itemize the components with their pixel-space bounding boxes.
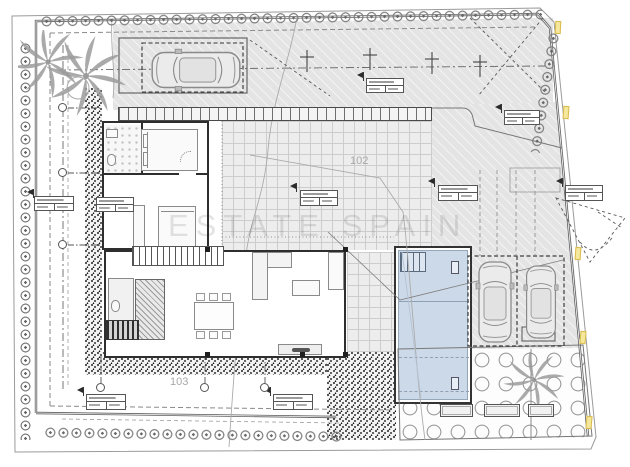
axis-bubble <box>260 383 269 392</box>
car-in-garage <box>150 48 242 92</box>
column <box>205 352 210 357</box>
boundary-highlight-marker <box>579 331 586 344</box>
chair <box>196 293 205 301</box>
armchair <box>328 252 344 290</box>
spot-level-table <box>34 196 74 211</box>
spot-level-table <box>438 185 478 201</box>
chair <box>222 293 231 301</box>
garden-planter <box>440 404 473 417</box>
garden-planter <box>528 404 554 417</box>
wc-toilet <box>111 300 120 312</box>
kitchen-island <box>135 279 165 340</box>
zone-label-103: 103 <box>170 376 188 388</box>
spot-level-table <box>273 394 313 410</box>
spot-level-table <box>565 185 603 201</box>
boundary-highlight-marker <box>555 21 562 34</box>
site-plan-canvas: 102 103 ESTATE SPAIN <box>0 0 630 467</box>
column <box>343 247 348 252</box>
roof-louvre-band <box>118 107 432 121</box>
bed <box>141 129 198 171</box>
pillow <box>143 152 148 166</box>
sofa <box>252 252 268 300</box>
column <box>300 352 305 357</box>
column <box>205 247 210 252</box>
spot-level-table <box>86 394 126 410</box>
wall <box>196 173 209 175</box>
dining-table <box>194 302 234 330</box>
pillow <box>143 134 148 148</box>
sink <box>106 129 118 138</box>
garden-planter <box>484 404 520 417</box>
spot-level-table <box>300 190 338 206</box>
parked-car-1 <box>475 260 515 344</box>
zone-label-102: 102 <box>350 155 368 167</box>
parked-car-2 <box>523 263 559 341</box>
axis-bubble <box>58 240 67 249</box>
boundary-highlight-marker <box>585 416 592 429</box>
palm-tree-southeast <box>500 352 570 412</box>
coffee-table <box>292 280 320 296</box>
boundary-highlight-marker <box>563 106 570 119</box>
axis-bubble <box>58 168 67 177</box>
watermark: ESTATE SPAIN <box>168 208 467 244</box>
staircase <box>132 246 224 266</box>
wardrobe <box>133 205 145 249</box>
spot-level-table <box>366 78 404 93</box>
axis-bubble <box>200 383 209 392</box>
chair <box>209 293 218 301</box>
spot-level-table <box>504 110 540 125</box>
wall <box>104 173 179 175</box>
axis-bubble <box>96 383 105 392</box>
axis-bubble <box>58 103 67 112</box>
entry-mat <box>106 320 139 340</box>
column <box>343 352 348 357</box>
boundary-highlight-marker <box>575 247 582 260</box>
chair <box>222 331 231 339</box>
chair <box>196 331 205 339</box>
spot-level-table <box>96 197 134 212</box>
toilet <box>107 154 116 166</box>
palm-trees-northwest <box>18 30 128 130</box>
living-wing <box>104 250 346 358</box>
chair <box>209 331 218 339</box>
